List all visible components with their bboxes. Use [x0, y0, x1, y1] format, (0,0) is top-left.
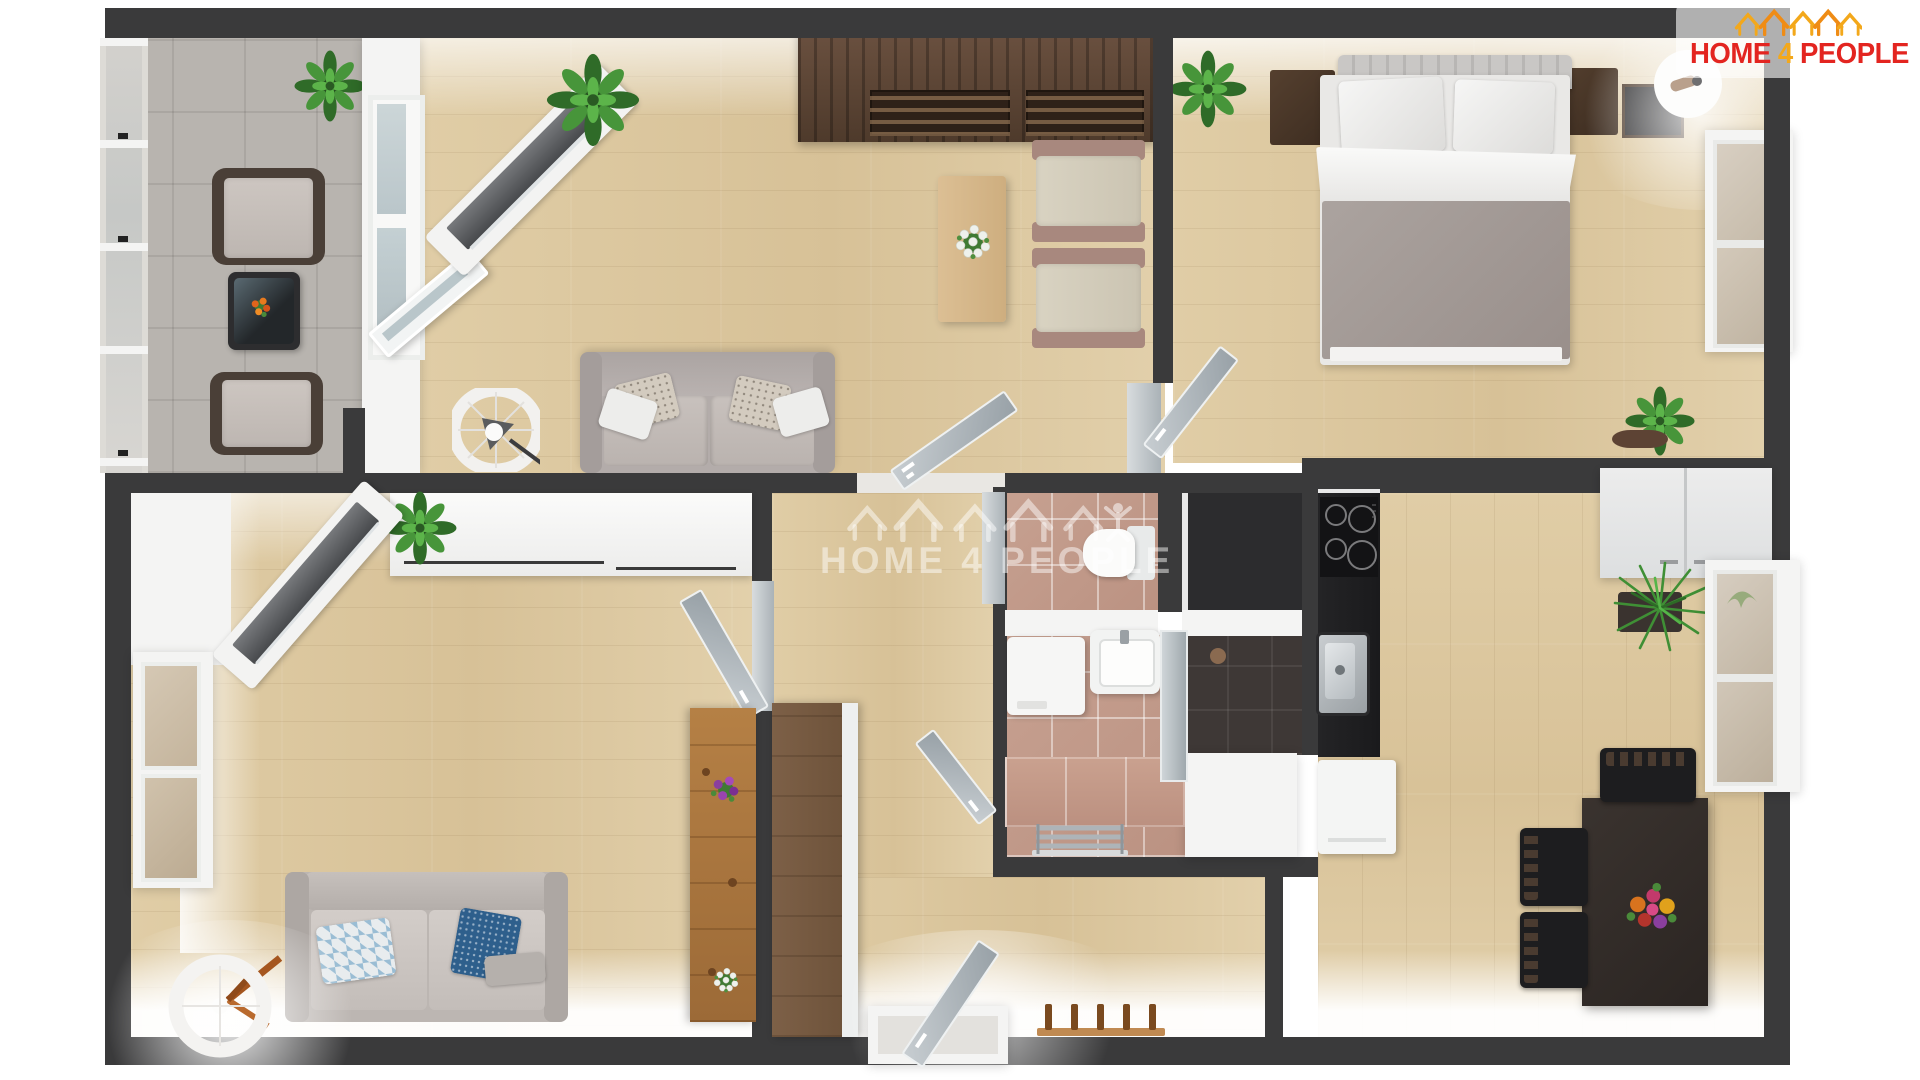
sofa-throw: [484, 951, 546, 986]
bed-pillow: [1338, 76, 1446, 155]
shower-side-panel: [1185, 753, 1297, 857]
living-sofa: [580, 352, 835, 473]
wall-bath-east: [1302, 487, 1318, 755]
window-pane: [377, 104, 406, 214]
washing-machine: [1007, 637, 1085, 715]
balcony-glass-pane: [106, 38, 142, 473]
tripod-floor-lamp: [168, 930, 288, 1060]
hallway-wardrobe: [772, 703, 858, 1037]
balcony-glazing: [100, 38, 148, 473]
wall-mid-left: [105, 473, 857, 493]
white-flowers-icon: [704, 956, 748, 1006]
logo-four: 4: [1778, 38, 1793, 70]
balcony-table: [228, 272, 300, 350]
wall-stub: [343, 408, 365, 473]
glazing-hinge: [118, 133, 128, 139]
storage-niche-floor: [1182, 487, 1308, 616]
balcony-armchair: [212, 168, 325, 265]
shower-glass-door: [1160, 630, 1188, 782]
sofa-pillow: [315, 917, 396, 985]
logo-badge: HOME 4 PEOPLE: [1676, 2, 1914, 78]
toilet: [1083, 524, 1157, 582]
balcony-plant-icon: [293, 40, 367, 132]
living-hallway-threshold: [857, 473, 1005, 493]
glazing-mullion: [100, 38, 148, 46]
plant-pot: [1612, 430, 1668, 448]
bedroom-plant-icon: [1168, 45, 1248, 133]
living-plant-icon: [543, 52, 643, 148]
kitchen-sink: [1316, 632, 1370, 716]
shower-drain: [1210, 648, 1226, 664]
room2-sofa: [285, 872, 568, 1022]
dining-plant-icon: [1602, 558, 1718, 658]
window-pane: [141, 774, 201, 882]
washbasin: [1090, 630, 1160, 694]
logo-people: PEOPLE: [1800, 38, 1909, 70]
purple-flowers-icon: [698, 760, 754, 820]
logo-houses-icon: [1734, 4, 1862, 38]
armchair: [1032, 248, 1145, 348]
shower-floor: [1183, 635, 1302, 755]
faucet: [1120, 630, 1129, 644]
dining-chair: [1520, 912, 1588, 988]
glazing-mullion: [100, 346, 148, 354]
rustic-shelf: [690, 708, 756, 1022]
dining-chair: [1600, 748, 1696, 802]
glazing-mullion: [100, 458, 148, 466]
logo-home: HOME: [1690, 38, 1771, 70]
balcony-armchair: [210, 372, 323, 455]
wall-wc-niche: [1158, 487, 1182, 612]
dishwasher: [1318, 760, 1396, 854]
armchair: [1032, 140, 1145, 242]
wall-top: [105, 8, 1790, 38]
wall-left-lower: [105, 473, 131, 1065]
double-bed: [1310, 55, 1578, 372]
wall-entry-dining: [1265, 877, 1283, 1037]
room2-corner-wall: [131, 493, 231, 665]
wc-door: [982, 492, 1005, 604]
glazing-mullion: [100, 140, 148, 148]
faucet: [1335, 665, 1345, 675]
window-pane: [1713, 570, 1777, 678]
orange-flowers-icon: [242, 288, 286, 332]
bath-tiled-wall: [1005, 757, 1185, 827]
glazing-hinge: [118, 450, 128, 456]
wall-room2-hall-upper: [752, 493, 772, 581]
bed-duvet: [1322, 201, 1570, 359]
bed-pillow: [1453, 79, 1555, 154]
cooktop: [1320, 497, 1378, 577]
dining-window: [1705, 560, 1800, 792]
white-flowers-icon: [942, 212, 1004, 274]
dining-chair: [1520, 828, 1588, 906]
window-pane: [1713, 678, 1777, 786]
slatted-sideboard: [798, 28, 1155, 142]
room2-plant-icon: [382, 487, 458, 569]
partition-niche-shower: [1182, 610, 1302, 636]
floor-lamp: [452, 388, 540, 472]
wall-living-bedroom: [1153, 38, 1173, 383]
glazing-hinge: [118, 236, 128, 242]
logo-text: HOME 4 PEOPLE: [1690, 38, 1909, 71]
room2-window: [133, 652, 213, 888]
glazing-mullion: [100, 243, 148, 251]
window-pane: [141, 662, 201, 770]
floorplan-canvas: HOME 4 PEOPLE HOME 4 PEOPLE: [0, 0, 1920, 1080]
bouquet-icon: [1612, 870, 1698, 956]
coat-rack: [1035, 1000, 1167, 1038]
towel-rack: [1028, 820, 1132, 860]
